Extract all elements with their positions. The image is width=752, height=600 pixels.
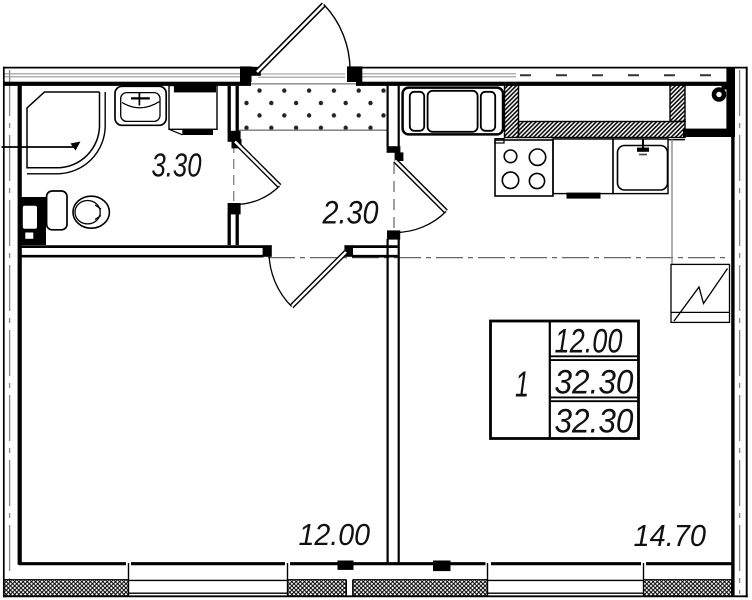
svg-text:32.30: 32.30 xyxy=(555,403,634,441)
svg-text:2.30: 2.30 xyxy=(322,195,379,231)
svg-text:14.70: 14.70 xyxy=(634,518,707,553)
svg-text:12.00: 12.00 xyxy=(555,323,623,361)
svg-text:12.00: 12.00 xyxy=(299,517,371,552)
svg-text:32.30: 32.30 xyxy=(555,364,634,402)
svg-text:3.30: 3.30 xyxy=(152,147,202,184)
svg-text:1: 1 xyxy=(515,364,529,405)
